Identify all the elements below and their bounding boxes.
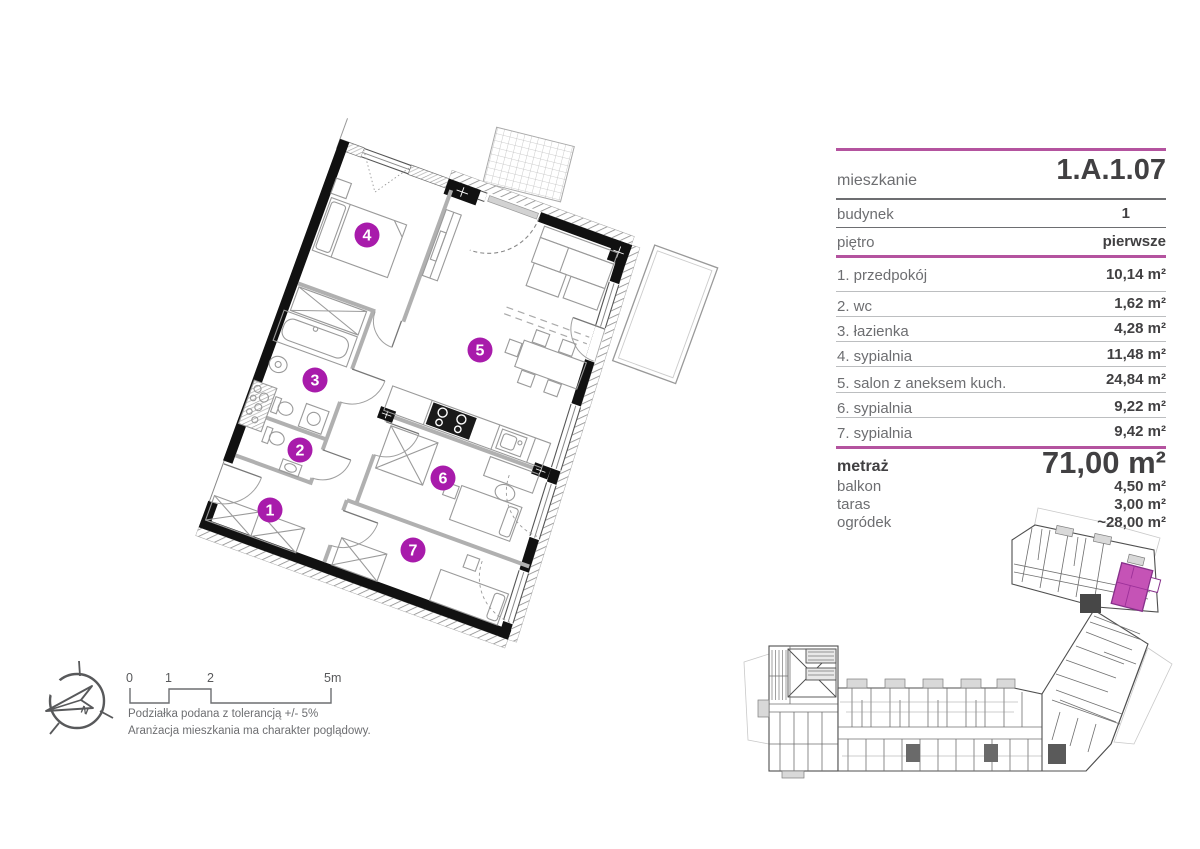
svg-text:0: 0 [126, 671, 133, 685]
svg-text:5m: 5m [324, 671, 341, 685]
svg-text:7: 7 [409, 543, 418, 560]
svg-text:4: 4 [363, 228, 372, 245]
svg-text:2: 2 [207, 671, 214, 685]
svg-text:1: 1 [165, 671, 172, 685]
svg-text:2: 2 [296, 443, 305, 460]
svg-text:5: 5 [476, 343, 485, 360]
svg-text:3: 3 [311, 373, 320, 390]
svg-text:1: 1 [266, 503, 275, 520]
svg-text:6: 6 [439, 471, 448, 488]
